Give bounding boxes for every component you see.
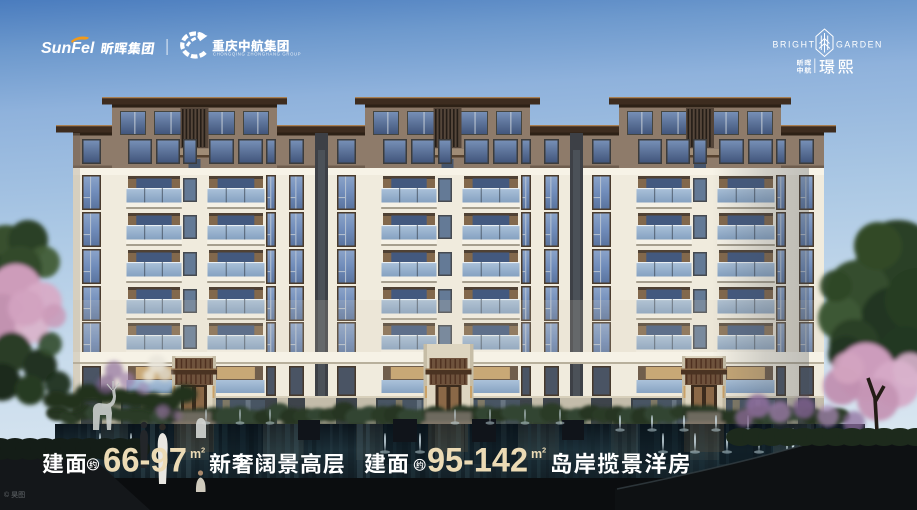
svg-text:m: m — [531, 447, 542, 461]
svg-text:m: m — [190, 447, 201, 461]
svg-text:BRIGHT: BRIGHT — [773, 40, 816, 50]
svg-text:SunFel: SunFel — [41, 40, 95, 57]
svg-text:66-97: 66-97 — [103, 442, 187, 480]
svg-text:95-142: 95-142 — [427, 442, 528, 480]
svg-text:GARDEN: GARDEN — [836, 40, 883, 50]
svg-text:© 昊图: © 昊图 — [4, 491, 25, 499]
svg-text:CHONGQING ZHONGHANG GROUP: CHONGQING ZHONGHANG GROUP — [213, 52, 301, 57]
svg-text:2: 2 — [542, 446, 546, 455]
svg-text:2: 2 — [201, 446, 205, 455]
